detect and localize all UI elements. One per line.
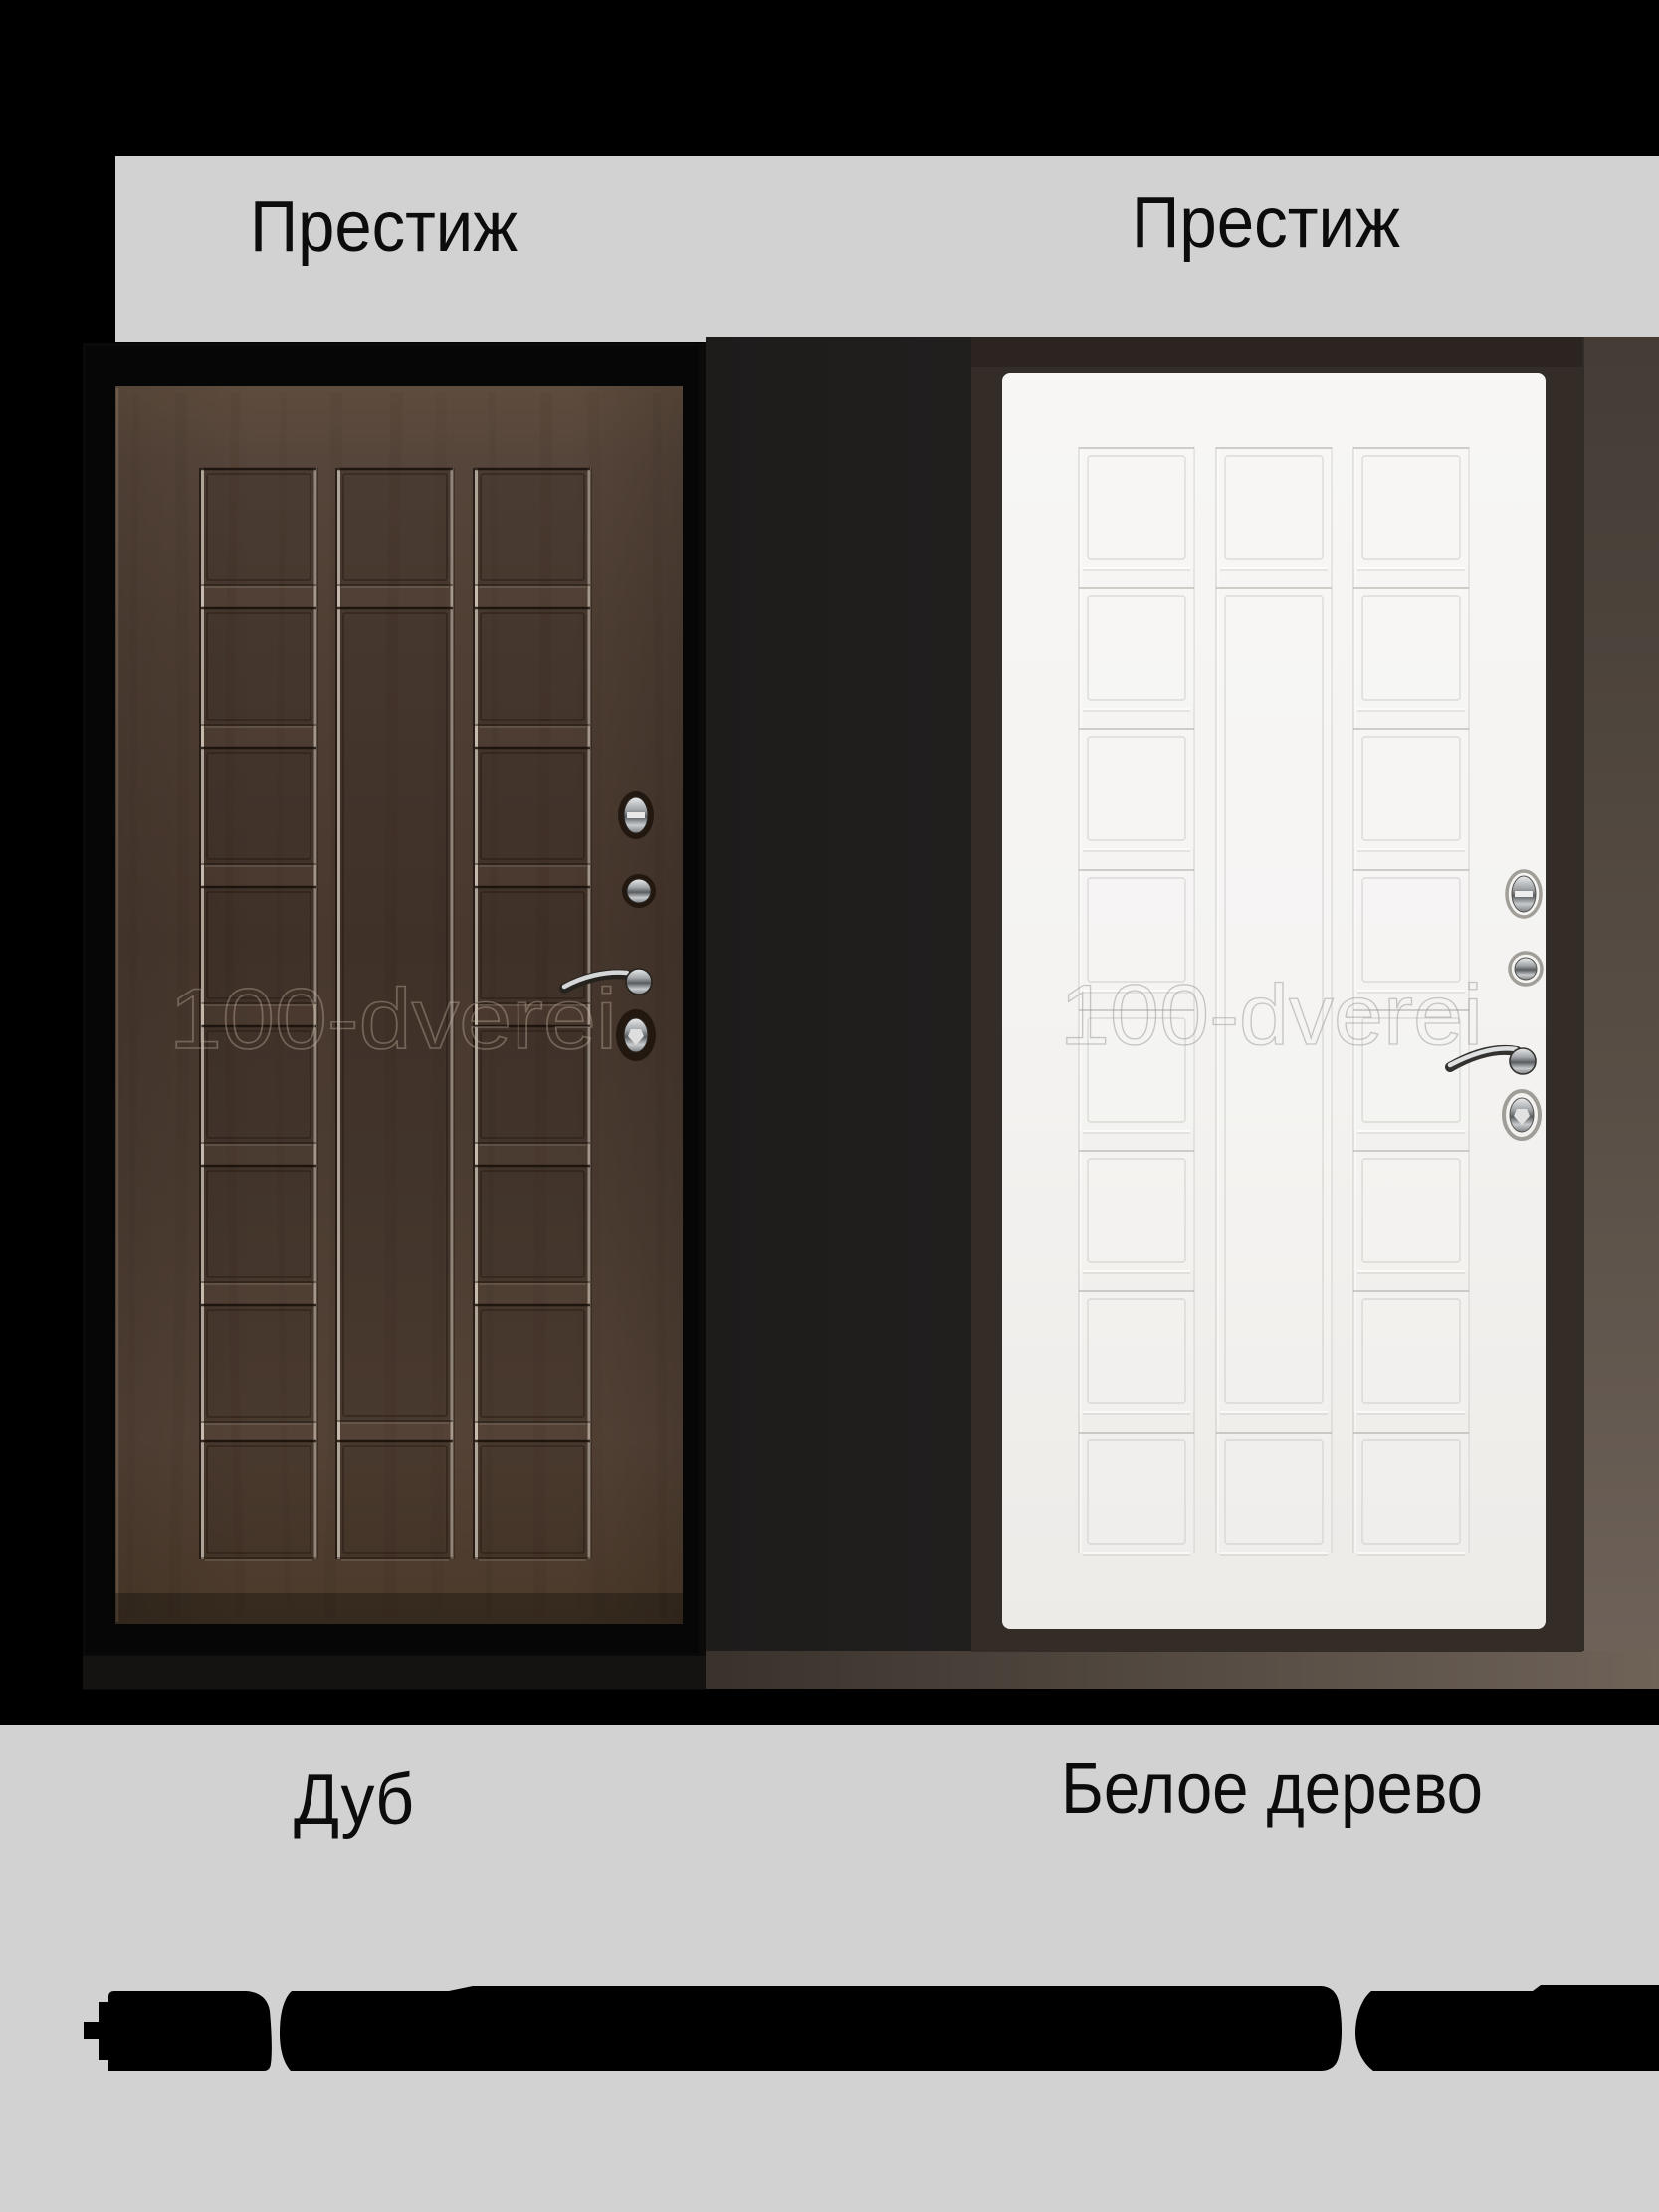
svg-text:Престиж: Престиж: [250, 187, 518, 267]
svg-text:100-dverei: 100-dverei: [1060, 968, 1483, 1063]
svg-text:Престиж: Престиж: [1132, 183, 1400, 263]
svg-text:Дуб: Дуб: [294, 1760, 414, 1840]
svg-text:100-dverei: 100-dverei: [169, 972, 617, 1067]
svg-text:Белое дерево: Белое дерево: [1061, 1749, 1483, 1829]
